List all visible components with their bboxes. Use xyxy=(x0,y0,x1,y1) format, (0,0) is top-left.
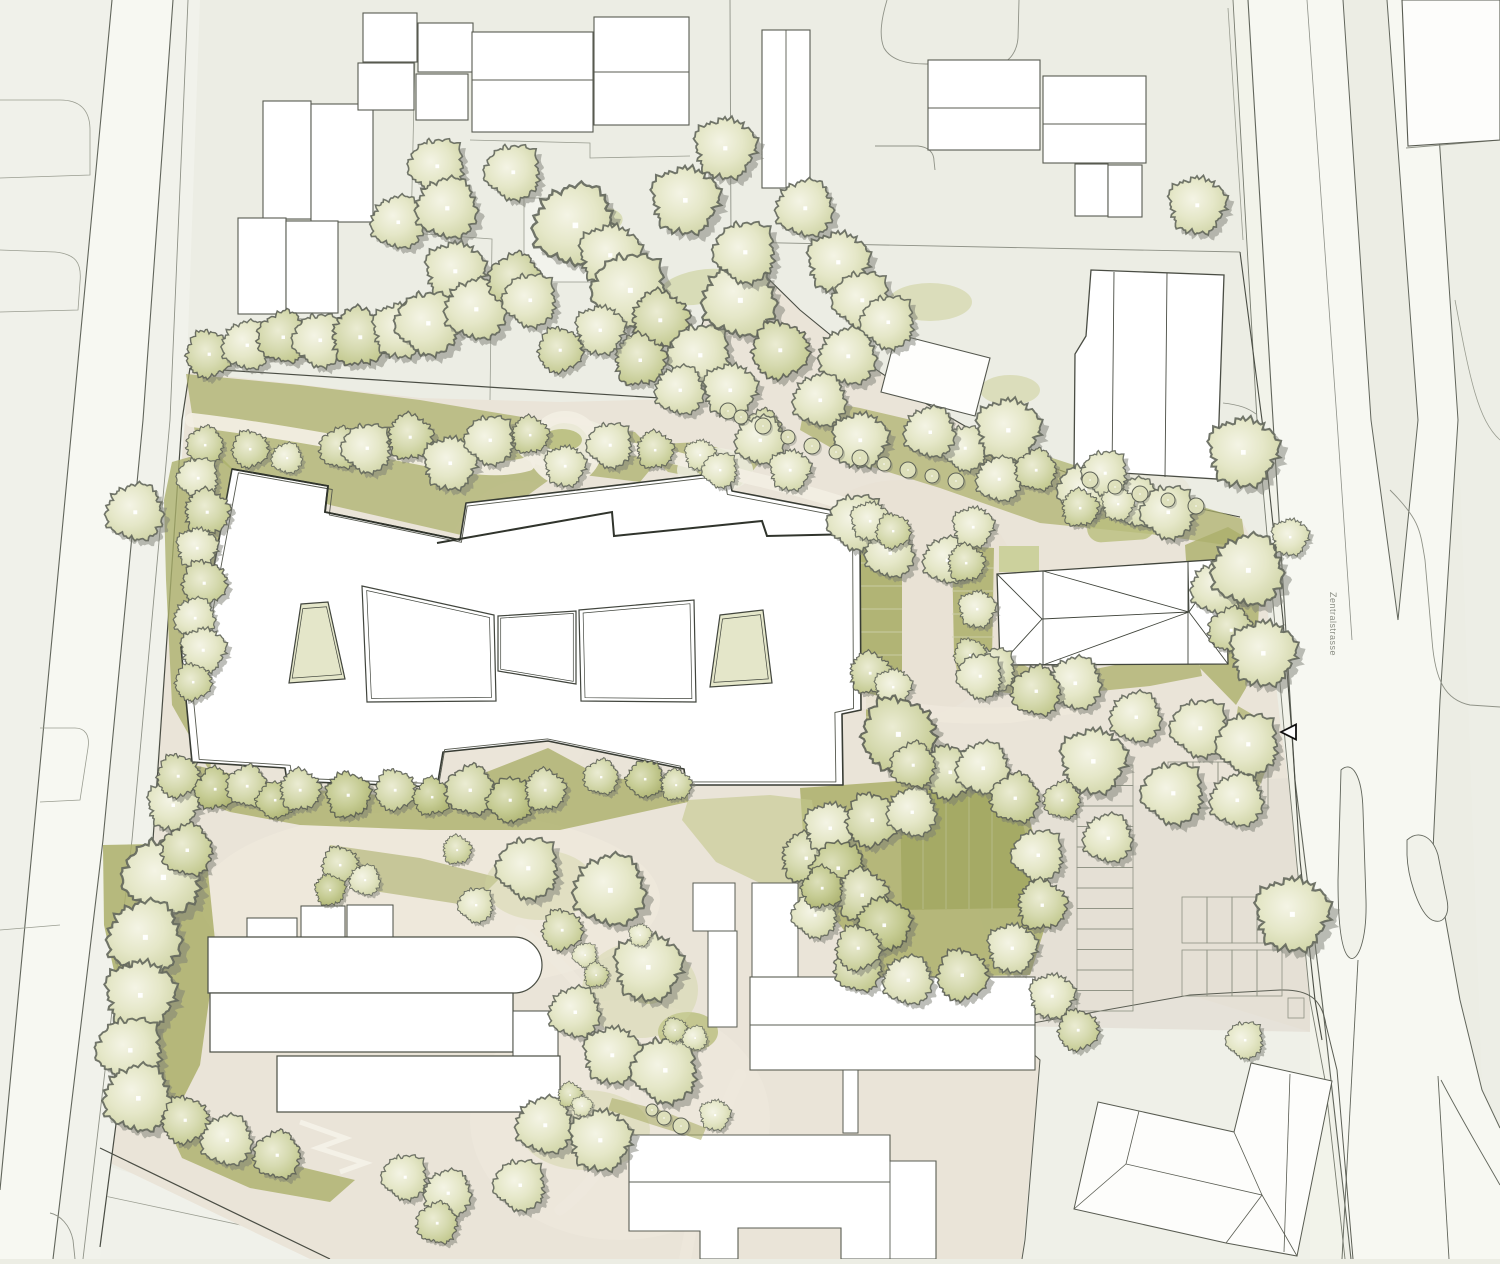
svg-text:Zentralstrasse: Zentralstrasse xyxy=(1328,592,1338,656)
